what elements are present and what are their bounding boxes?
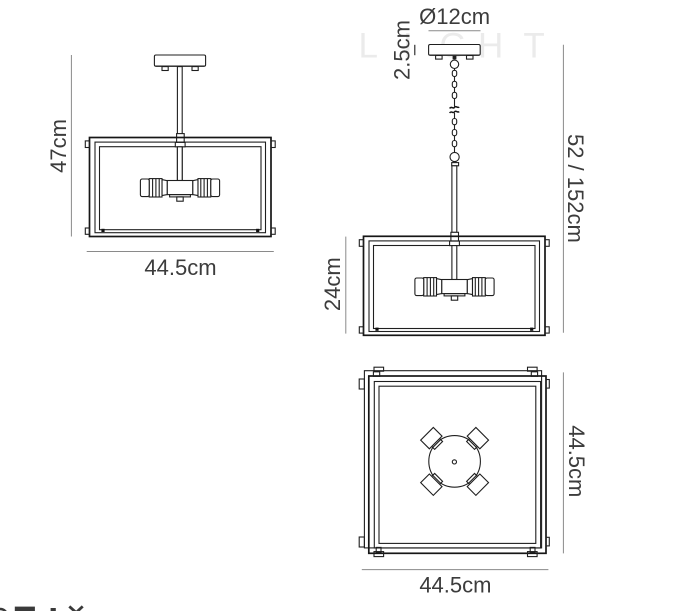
svg-text:L: L [359,27,378,66]
svg-text:52 / 152cm: 52 / 152cm [563,134,588,243]
svg-text:Ø12cm: Ø12cm [419,4,490,29]
svg-text:T: T [523,27,544,66]
svg-text:44.5cm: 44.5cm [419,573,491,598]
svg-text:44.5cm: 44.5cm [564,425,589,497]
svg-text:H: H [478,27,503,66]
svg-text:2.5cm: 2.5cm [390,20,415,80]
svg-text:47cm: 47cm [46,119,71,173]
svg-text:44.5cm: 44.5cm [144,255,216,280]
svg-text:24cm: 24cm [320,257,345,311]
